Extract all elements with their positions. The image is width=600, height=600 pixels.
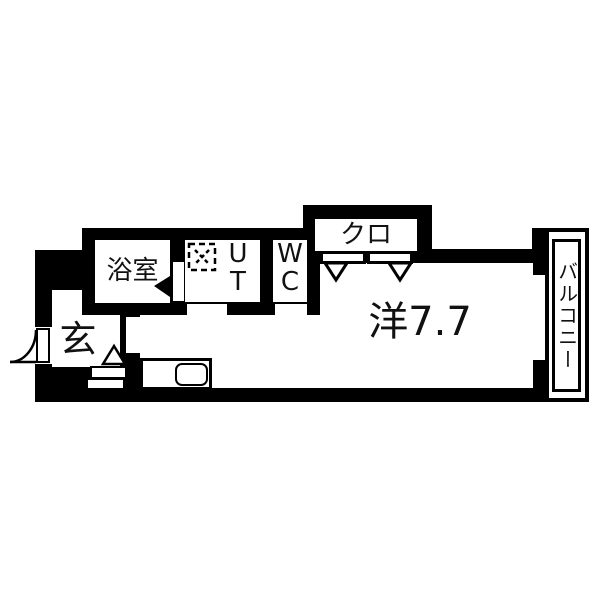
- balcony-label: バルコニー: [555, 246, 577, 386]
- closet-door-triangle-icon: [325, 263, 347, 280]
- washer-pan-icon: [189, 244, 215, 270]
- toilet-label: W C: [273, 240, 307, 296]
- closet-door-triangle-icon: [389, 263, 411, 280]
- step-up-triangle-icon: [103, 346, 125, 364]
- entry-door-arc-icon: [10, 330, 36, 362]
- toilet-label-line2: C: [273, 268, 307, 296]
- utility-label-line2: T: [218, 268, 258, 296]
- utility-label: U T: [218, 240, 258, 296]
- entrance-label: 玄: [56, 320, 100, 360]
- floor-plan: 浴室 U T W C クロ 洋7.7 玄 バルコニー: [0, 0, 600, 600]
- main-room-label: 洋7.7: [330, 301, 510, 344]
- utility-label-line1: U: [218, 240, 258, 268]
- closet-label: クロ: [315, 221, 417, 249]
- toilet-label-line1: W: [273, 240, 307, 268]
- bathroom-label: 浴室: [95, 257, 170, 285]
- floorplan-linework: [0, 0, 600, 600]
